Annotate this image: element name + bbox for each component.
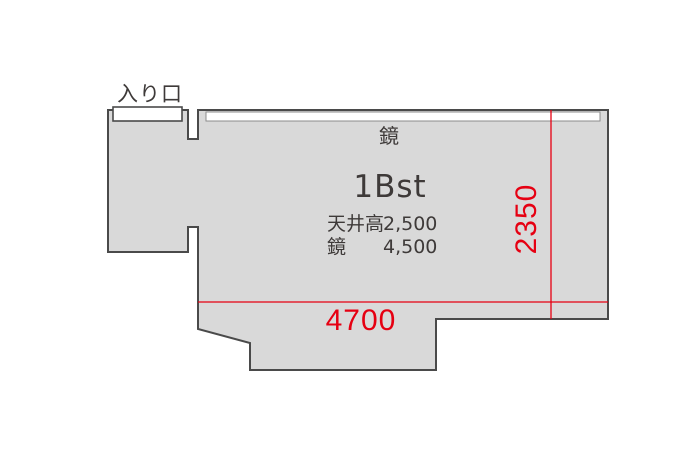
spec-ceiling-value: 2,500: [383, 213, 437, 235]
dimension-width-label: 4700: [326, 304, 397, 337]
floor-plan-drawing: 入り口 鏡 1Bst 天井高 2,500 鏡 4,500 4700 2350: [0, 0, 700, 465]
mirror-label: 鏡: [379, 124, 399, 148]
spec-mirror-label: 鏡: [327, 236, 346, 258]
mirror-strip: [206, 112, 600, 121]
dimension-height-label: 2350: [510, 184, 543, 255]
floor-plan-page: 入り口 鏡 1Bst 天井高 2,500 鏡 4,500 4700 2350: [0, 0, 700, 465]
entrance-label: 入り口: [117, 82, 183, 106]
entrance-door: [113, 107, 182, 121]
spec-ceiling-label: 天井高: [327, 213, 384, 235]
spec-mirror-value: 4,500: [383, 236, 437, 258]
room-name-label: 1Bst: [353, 169, 426, 205]
